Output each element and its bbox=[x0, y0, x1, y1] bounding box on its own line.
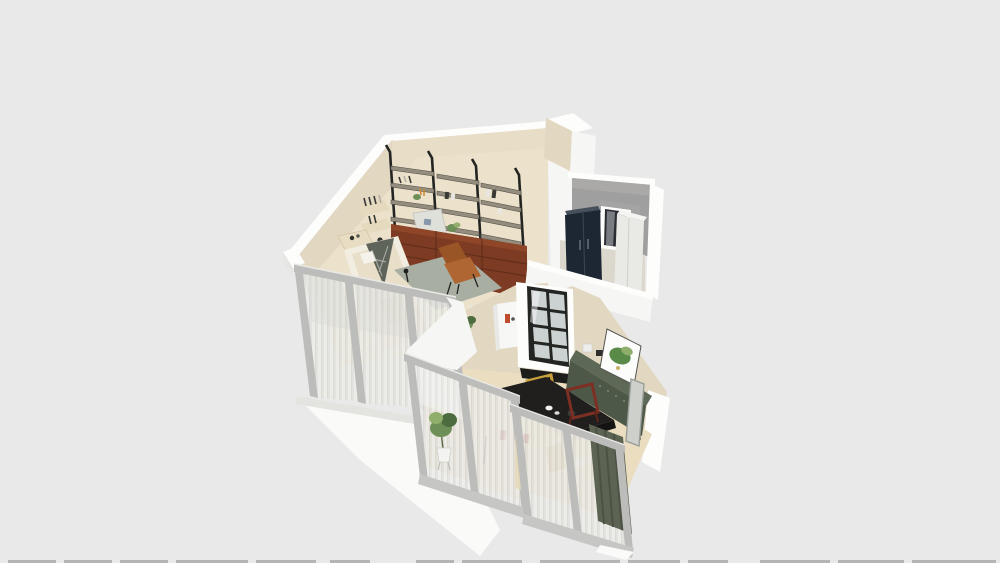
floorplan-3d-viewport[interactable] bbox=[0, 0, 1000, 563]
glass-panel-door[interactable] bbox=[516, 282, 578, 385]
desk-box bbox=[424, 219, 432, 226]
